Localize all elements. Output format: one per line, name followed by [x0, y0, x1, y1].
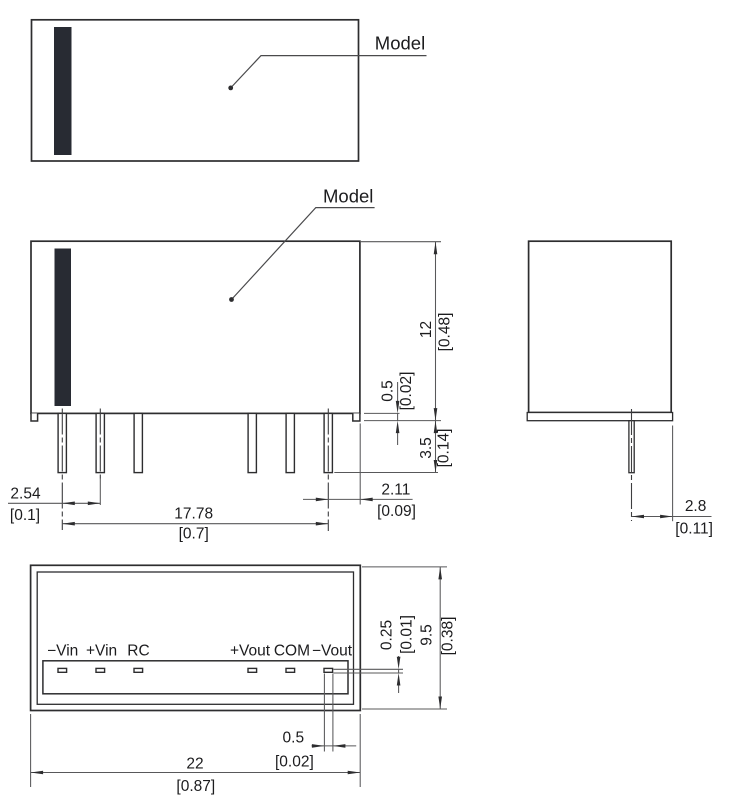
svg-text:[0.11]: [0.11]	[675, 521, 713, 538]
svg-text:2.11: 2.11	[381, 481, 410, 498]
svg-text:22: 22	[186, 756, 203, 773]
svg-text:[0.1]: [0.1]	[10, 507, 40, 524]
svg-text:0.5: 0.5	[283, 729, 305, 746]
svg-text:[0.48]: [0.48]	[437, 313, 454, 352]
svg-text:−Vin: −Vin	[47, 643, 78, 660]
svg-text:0.25: 0.25	[379, 620, 396, 650]
svg-text:−Vout: −Vout	[312, 643, 353, 660]
svg-text:+Vin: +Vin	[86, 643, 117, 660]
svg-text:[0.09]: [0.09]	[377, 503, 416, 520]
svg-text:[0.02]: [0.02]	[275, 754, 314, 771]
svg-text:[0.02]: [0.02]	[398, 372, 415, 411]
svg-text:2.54: 2.54	[10, 486, 41, 503]
svg-text:Model: Model	[375, 33, 425, 54]
svg-text:2.8: 2.8	[685, 498, 707, 515]
svg-text:[0.87]: [0.87]	[176, 778, 215, 795]
svg-text:[0.7]: [0.7]	[179, 526, 209, 543]
svg-text:[0.01]: [0.01]	[399, 615, 416, 654]
svg-text:Model: Model	[323, 186, 373, 207]
svg-text:+Vout: +Vout	[230, 643, 271, 660]
svg-text:RC: RC	[127, 643, 149, 660]
svg-text:17.78: 17.78	[174, 506, 213, 523]
svg-text:[0.14]: [0.14]	[436, 429, 453, 468]
svg-text:9.5: 9.5	[419, 624, 436, 646]
svg-text:COM: COM	[274, 643, 310, 660]
svg-text:3.5: 3.5	[418, 437, 435, 459]
svg-text:0.5: 0.5	[380, 380, 397, 402]
svg-text:[0.38]: [0.38]	[440, 617, 457, 656]
svg-text:12: 12	[418, 321, 435, 338]
